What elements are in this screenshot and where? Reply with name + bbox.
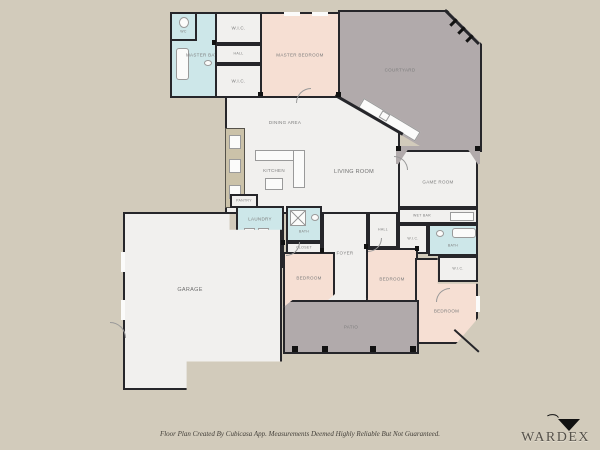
room-label: LAUNDRY	[238, 217, 282, 222]
fridge-icon	[229, 135, 241, 149]
room-game-room: GAME ROOM	[398, 150, 478, 208]
room-wic-top: W.I.C.	[215, 12, 262, 44]
room-label: BEDROOM	[368, 277, 416, 282]
door-jamb	[475, 146, 480, 151]
sink-icon	[436, 230, 444, 237]
oven-icon	[229, 159, 241, 173]
kitchen-block	[265, 178, 283, 190]
room-bath-hall: BATH	[286, 206, 322, 242]
room-label: MASTER BATH	[186, 53, 215, 58]
window-icon	[121, 300, 125, 320]
door-jamb	[320, 248, 324, 253]
sink-icon	[204, 60, 212, 66]
window-icon	[312, 12, 328, 16]
patio-post	[410, 346, 416, 352]
room-label: BATH	[430, 243, 476, 248]
patio-post	[370, 346, 376, 352]
room-label: PATIO	[285, 325, 417, 330]
room-wic-mid: W.I.C.	[215, 64, 262, 98]
logo-brand-text: WARDEX	[521, 430, 590, 446]
room-garage: GARAGE	[123, 212, 282, 390]
window-icon	[284, 12, 300, 16]
bathtub-icon	[452, 228, 476, 238]
room-label: WET BAR	[400, 214, 444, 219]
toilet-icon	[179, 17, 189, 28]
room-label: HALL	[370, 228, 396, 233]
room-hall-top: HALL	[215, 44, 262, 64]
room-label: MASTER BEDROOM	[262, 53, 338, 58]
room-label: W.I.C.	[217, 79, 260, 84]
room-label: GAME ROOM	[400, 179, 476, 184]
room-wet-bar: WET BAR	[398, 208, 478, 224]
room-wic-right-b: W.I.C.	[438, 256, 478, 282]
door-jamb	[364, 244, 368, 249]
room-master-bedroom: MASTER BEDROOM	[260, 12, 340, 98]
room-label: LIVING ROOM	[324, 170, 384, 175]
door-jamb	[258, 92, 263, 96]
room-label: WC	[172, 29, 195, 34]
patio-post	[322, 346, 328, 352]
room-label: DINING AREA	[255, 120, 315, 125]
window-icon	[121, 252, 125, 272]
room-label: GARAGE	[145, 288, 235, 293]
room-label: BEDROOM	[417, 308, 476, 313]
bathtub-icon	[176, 48, 189, 80]
door-jamb	[281, 240, 285, 245]
room-label: HALL	[217, 52, 260, 57]
room-label: W.I.C.	[400, 237, 426, 242]
door-jamb	[336, 92, 341, 97]
disclaimer-text: Floor Plan Created By Cubicasa App. Meas…	[0, 430, 600, 438]
room-patio: PATIO	[283, 300, 419, 354]
door-jamb	[415, 246, 419, 251]
floor-plan-canvas: MASTER BATH WC W.I.C. HALL W.I.C. MASTER…	[0, 0, 600, 450]
door-jamb	[212, 40, 216, 45]
room-label: W.I.C.	[440, 267, 476, 272]
room-label: W.I.C.	[217, 26, 260, 31]
room-wc-master: WC	[170, 12, 197, 41]
patio-post	[292, 346, 298, 352]
room-label: BATH	[288, 229, 320, 234]
room-label: COURTYARD	[320, 67, 480, 72]
room-label: BEDROOM	[285, 275, 333, 280]
door-jamb	[396, 146, 401, 151]
room-label: PANTRY	[232, 199, 256, 204]
shower-icon	[290, 210, 306, 226]
sink-icon	[311, 214, 319, 221]
room-bath-right: BATH	[428, 224, 478, 256]
wardex-logo: WARDEX	[520, 412, 590, 446]
kitchen-island	[293, 150, 305, 188]
bar-counter-icon	[450, 212, 474, 221]
window-icon	[476, 296, 480, 312]
